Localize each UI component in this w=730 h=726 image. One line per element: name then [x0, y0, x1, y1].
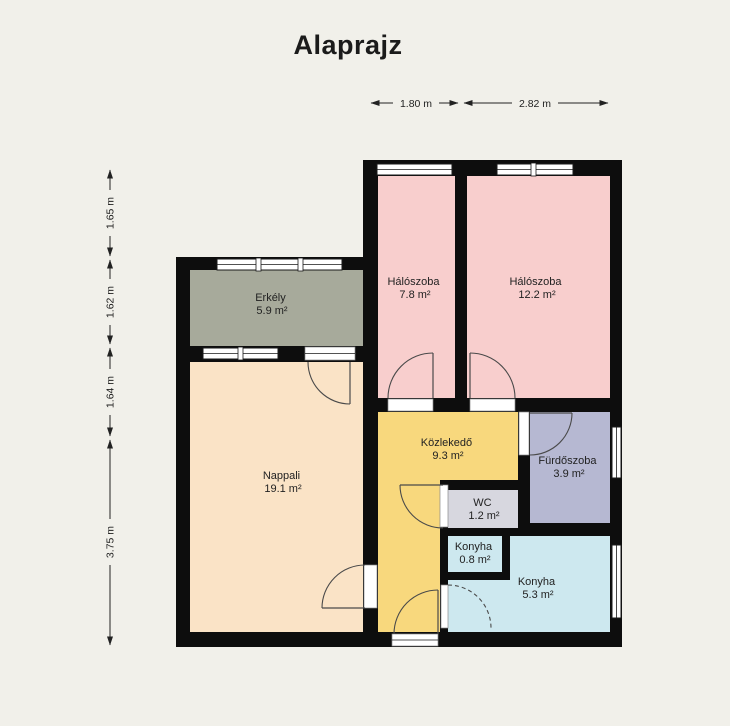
room-wc-floor — [448, 490, 518, 528]
floor-plan-page: Alaprajz — [0, 0, 730, 726]
floor-plan: Erkély 5.9 m² Hálószoba 7.8 m² Hálószoba… — [0, 0, 730, 726]
door-opening-haloszoba1 — [388, 399, 433, 411]
window-haloszoba1 — [377, 164, 452, 175]
dimension-top-2: 2.82 m — [464, 96, 608, 110]
svg-text:1.80 m: 1.80 m — [400, 98, 432, 110]
dimension-left-1: 1.65 m — [104, 170, 117, 256]
dimension-left-3: 1.64 m — [104, 348, 117, 436]
door-opening-nappali — [364, 565, 377, 608]
svg-text:1.65 m: 1.65 m — [105, 197, 117, 229]
balcony-door — [305, 347, 355, 360]
svg-text:1.64 m: 1.64 m — [105, 376, 117, 408]
svg-text:2.82 m: 2.82 m — [519, 98, 551, 110]
dimension-top-1: 1.80 m — [371, 96, 458, 110]
door-opening-konyha — [441, 585, 448, 628]
label-konyha-small: Konyha 0.8 m² — [455, 541, 495, 566]
door-opening-wc — [440, 485, 448, 527]
label-erkely: Erkély 5.9 m² — [255, 292, 289, 317]
window-erkely-top — [217, 258, 342, 271]
window-furdoszoba — [612, 427, 621, 478]
label-konyha-large: Konyha 5.3 m² — [518, 576, 558, 601]
entry-door — [392, 634, 438, 646]
svg-text:1.62 m: 1.62 m — [105, 286, 117, 318]
svg-text:3.75 m: 3.75 m — [105, 526, 117, 558]
room-kozlekedo-floor-lower — [378, 480, 440, 632]
window-haloszoba2 — [497, 163, 573, 176]
door-opening-furdoszoba — [519, 412, 529, 455]
door-opening-haloszoba2 — [470, 399, 515, 411]
window-konyha — [612, 545, 621, 618]
dimension-left-4: 3.75 m — [104, 440, 117, 645]
dimension-left-2: 1.62 m — [104, 260, 117, 344]
label-nappali: Nappali 19.1 m² — [263, 470, 303, 495]
window-erkely-nappali — [203, 347, 278, 360]
